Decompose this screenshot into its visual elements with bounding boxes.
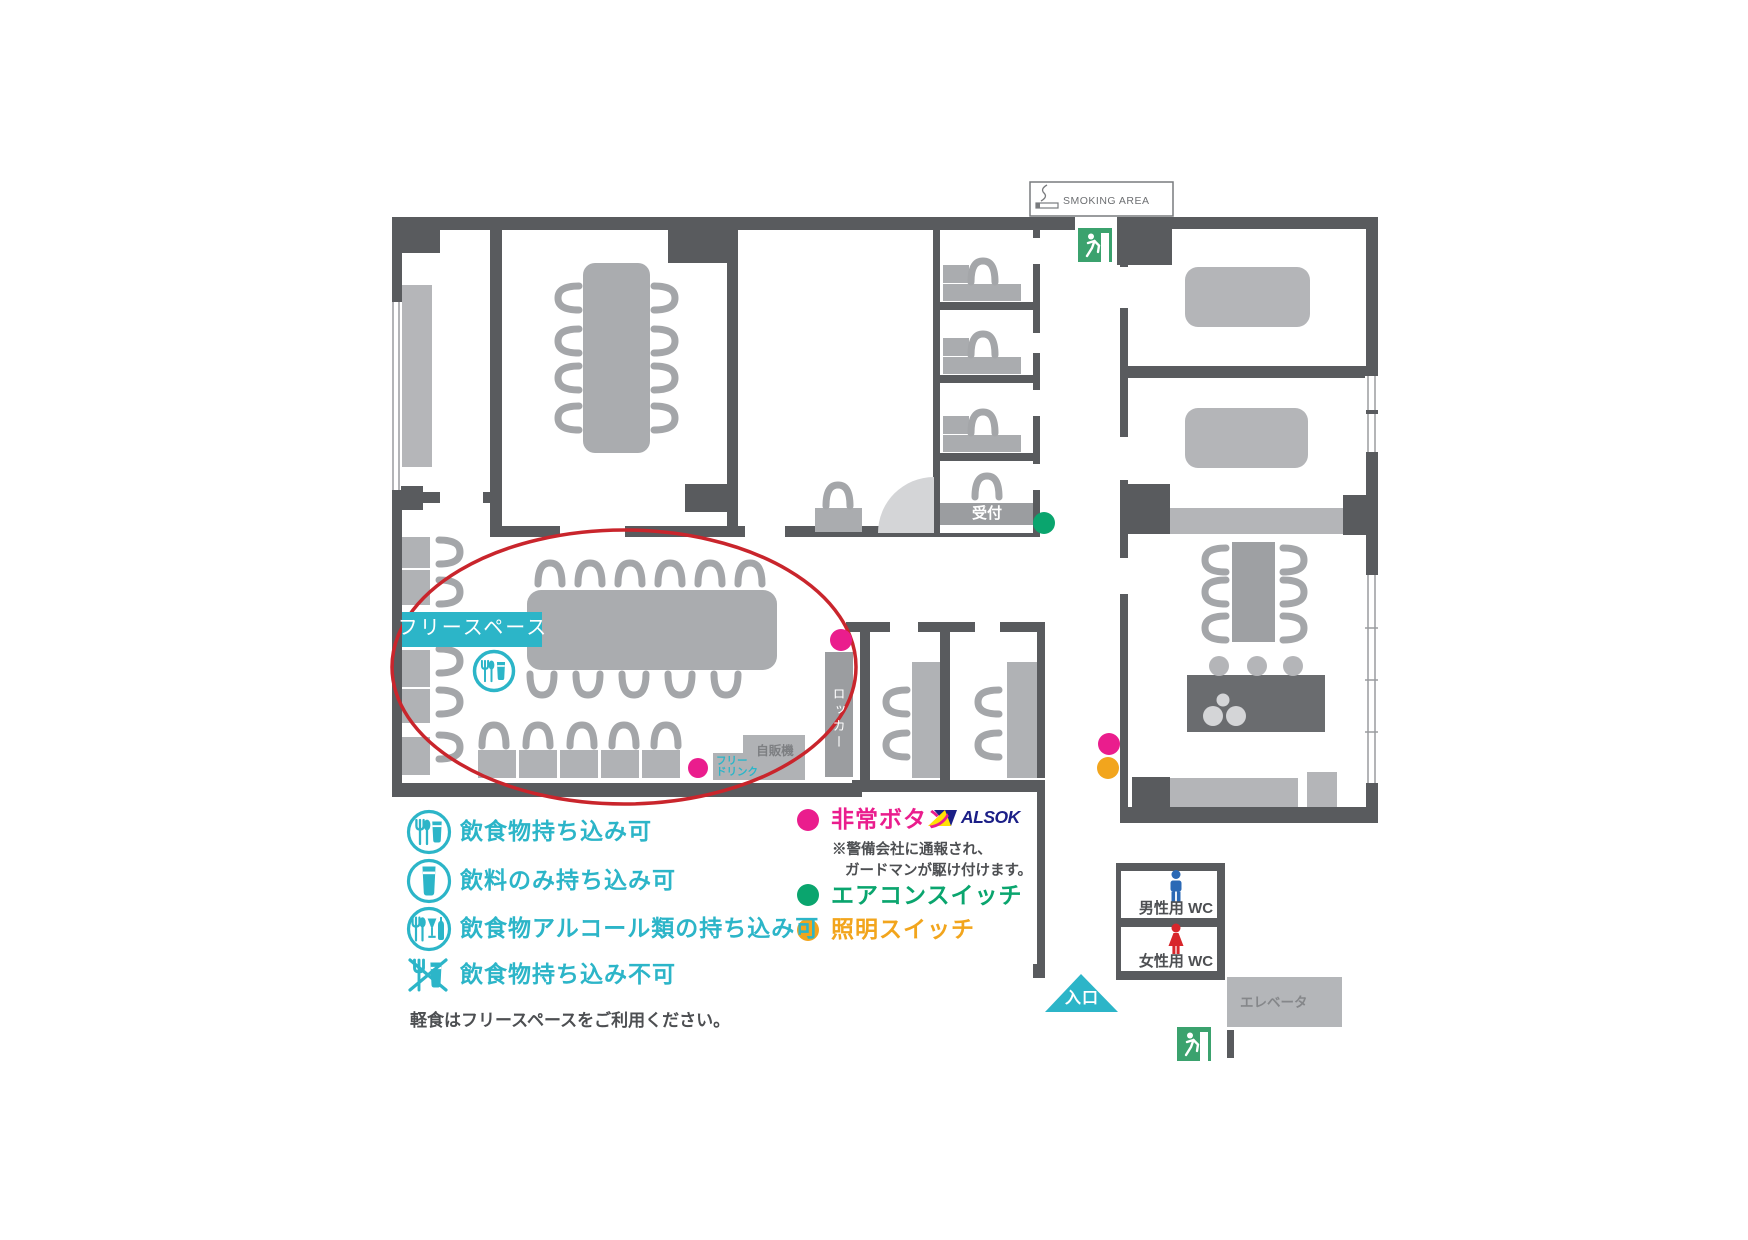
- floor-plan-page: SMOKING AREA 受付 フリースペース ロッカー 自販機 フリー ドリン…: [0, 0, 1748, 1240]
- free-space-counter: [478, 750, 680, 778]
- elevator-label: エレベータ: [1240, 996, 1308, 1010]
- emergency-note-line1: ※警備会社に通報され、: [832, 843, 992, 858]
- legend-food-note: 軽食はフリースペースをご利用ください。: [410, 1012, 730, 1030]
- legend-aircon-label: エアコンスイッチ: [831, 883, 1023, 907]
- entrance-label: 入口: [1065, 991, 1099, 1008]
- food-drink-allowed-map-icon: [475, 652, 514, 691]
- emergency-exit-icon-top: [1078, 228, 1112, 262]
- emergency-button-dot-freespace-right: [830, 629, 852, 651]
- reception-label: 受付: [972, 506, 1002, 522]
- kitchen-counter: [1187, 675, 1325, 732]
- desk: [815, 508, 862, 532]
- aircon-switch-dot-reception: [1033, 512, 1055, 534]
- counter-band: [1170, 508, 1343, 534]
- legend-food-item-1: 飲食物持ち込み可: [460, 819, 652, 843]
- female-icon: [1169, 924, 1184, 955]
- legend-aircon-dot: [797, 884, 819, 906]
- food-and-alcohol-allowed-icon: [409, 909, 450, 950]
- womens-wc-label: 女性用 WC: [1139, 954, 1213, 970]
- meeting-table: [583, 263, 650, 453]
- food-and-drink-allowed-icon: [409, 812, 450, 853]
- free-space-label: フリースペース: [398, 618, 549, 639]
- food-and-drink-prohibited-icon: [410, 960, 446, 990]
- corner-counter: [878, 477, 934, 533]
- emergency-exit-icon-bottom: [1177, 1027, 1211, 1061]
- legend-emergency-dot: [797, 809, 819, 831]
- legend-food-item-4: 飲食物持ち込み不可: [460, 962, 676, 986]
- legend-emergency-label: 非常ボタン: [831, 807, 951, 831]
- emergency-note-line2: ガードマンが駆け付けます。: [845, 864, 1032, 879]
- booth-room-desk-a: [912, 662, 940, 778]
- emergency-button-dot-corridor: [1098, 733, 1120, 755]
- legend-light-label: 照明スイッチ: [831, 917, 975, 941]
- smoking-area-label: SMOKING AREA: [1063, 196, 1150, 207]
- mens-wc-label: 男性用 WC: [1139, 901, 1213, 917]
- whiteboard: [402, 285, 432, 467]
- room-table-1: [1185, 267, 1310, 327]
- free-space-table: [527, 590, 777, 670]
- emergency-button-dot-freespace-bottom: [688, 758, 708, 778]
- booth-room-desk-b: [1007, 662, 1037, 778]
- room-table-2: [1185, 408, 1308, 468]
- vending-machine-label: 自販機: [756, 745, 794, 758]
- booth-desks: [943, 265, 1021, 452]
- drink-only-allowed-icon: [409, 861, 450, 902]
- locker-label: ロッカー: [831, 687, 845, 751]
- male-icon: [1171, 870, 1182, 902]
- kitchen-table: [1232, 542, 1275, 642]
- floor-plan-drawing: [0, 0, 1748, 1240]
- free-drink-label: フリー ドリンク: [716, 756, 758, 778]
- legend-food-item-3: 飲食物アルコール類の持ち込み可: [460, 916, 819, 940]
- legend-food-item-2: 飲料のみ持ち込み可: [460, 868, 676, 892]
- alsok-logo-text: ALSOK: [961, 808, 1020, 826]
- light-switch-dot-corridor: [1097, 757, 1119, 779]
